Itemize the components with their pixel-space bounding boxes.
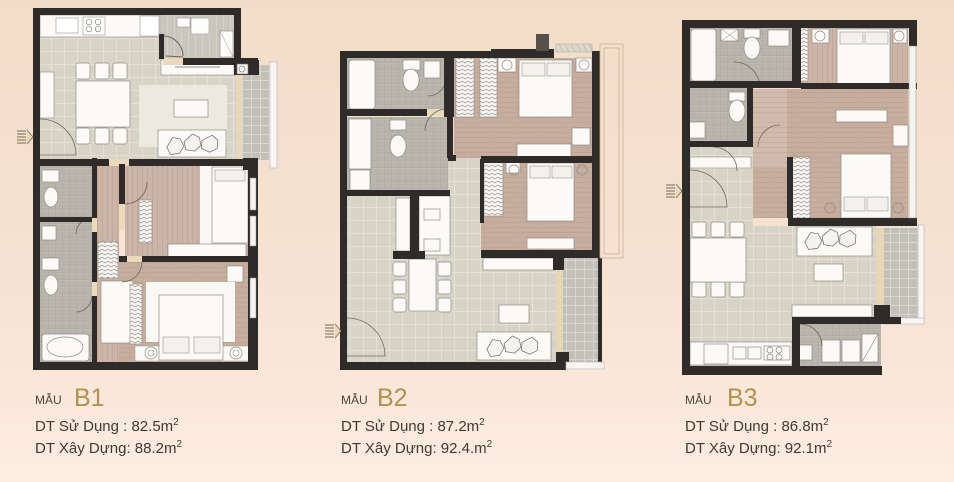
svg-text:DT Sử Dụng : 82.5m2: DT Sử Dụng : 82.5m2 [35,417,179,435]
svg-text:MẪU: MẪU [341,392,368,407]
svg-text:MẪU: MẪU [685,392,712,407]
svg-text:MẪU: MẪU [35,392,62,407]
svg-text:B2: B2 [377,384,408,412]
svg-text:B1: B1 [74,384,105,412]
svg-text:DT Sử Dụng : 87.2m2: DT Sử Dụng : 87.2m2 [341,417,485,435]
svg-text:B3: B3 [727,384,758,412]
svg-text:DT Xây Dựng: 92.4.m2: DT Xây Dựng: 92.4.m2 [341,439,493,457]
svg-text:DT Xây Dựng: 92.1m2: DT Xây Dựng: 92.1m2 [685,439,833,457]
svg-text:DT Sử Dụng : 86.8m2: DT Sử Dụng : 86.8m2 [685,417,829,435]
svg-text:DT Xây Dựng: 88.2m2: DT Xây Dựng: 88.2m2 [35,439,183,457]
